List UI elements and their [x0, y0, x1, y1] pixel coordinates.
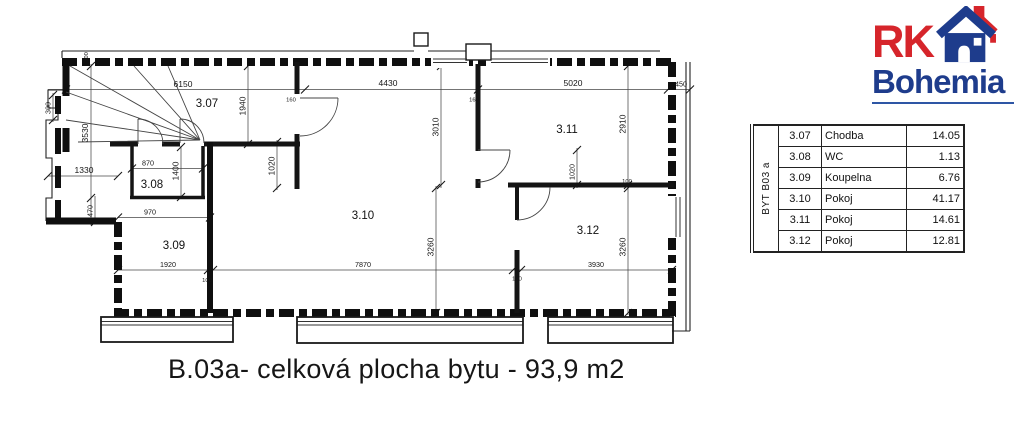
- legend-room-id: 3.12: [779, 231, 822, 253]
- room-308: 3.08: [141, 179, 163, 191]
- legend-row: 3.08 WC 1.13: [752, 147, 964, 168]
- legend-row: 3.09 Koupelna 6.76: [752, 168, 964, 189]
- legend-room-area: 6.76: [907, 168, 965, 189]
- legend-room-id: 3.09: [779, 168, 822, 189]
- dim-5020: 5020: [564, 78, 583, 88]
- dim-6150: 6150: [174, 79, 193, 89]
- dim-100-c: 100: [512, 277, 522, 283]
- dim-3260-left: 3260: [426, 237, 436, 256]
- dim-7870: 7870: [355, 260, 371, 269]
- house-icon: [934, 6, 998, 64]
- legend-room-name: Pokoj: [822, 210, 907, 231]
- window-sill: [548, 317, 673, 343]
- room-311: 3.11: [556, 124, 578, 136]
- dim-4430: 4430: [379, 78, 398, 88]
- page: 3.07 3.08 3.09 3.10 3.11 3.12 6150 4430 …: [0, 0, 1024, 429]
- dim-450: 450: [675, 80, 687, 89]
- legend-room-name: Pokoj: [822, 189, 907, 210]
- dim-300: 300: [44, 102, 53, 114]
- legend-title-cell: BYT B03 a: [752, 125, 779, 252]
- legend-title: BYT B03 a: [761, 162, 772, 215]
- dim-3530: 3530: [80, 123, 90, 142]
- dim-1920: 1920: [160, 260, 176, 269]
- dim-3930: 3930: [588, 260, 604, 269]
- dim-3010: 3010: [431, 117, 441, 136]
- dim-2910: 2910: [618, 114, 628, 133]
- logo-bohemia: Bohemia: [872, 65, 1020, 98]
- legend-room-name: Chodba: [822, 125, 907, 147]
- legend-room-name: WC: [822, 147, 907, 168]
- window-sill: [297, 317, 523, 343]
- dim-970: 970: [144, 208, 156, 217]
- legend-table: BYT B03 a 3.07 Chodba 14.05 3.08 WC 1.13…: [750, 124, 965, 253]
- logo: RK Bohemia: [872, 6, 1020, 104]
- caption: B.03a- celková plocha bytu - 93,9 m2: [168, 354, 625, 385]
- dim-1020-left: 1020: [267, 156, 277, 175]
- legend-row: 3.10 Pokoj 41.17: [752, 189, 964, 210]
- pillar: [466, 44, 491, 60]
- legend-room-id: 3.07: [779, 125, 822, 147]
- logo-rk: RK: [872, 21, 933, 64]
- logo-underline: [872, 102, 1014, 104]
- top-notch: [414, 33, 428, 46]
- dim-1940: 1940: [238, 96, 248, 115]
- window-glazing: [101, 59, 680, 325]
- room-307: 3.07: [196, 98, 218, 110]
- legend-room-id: 3.10: [779, 189, 822, 210]
- legend-room-area: 41.17: [907, 189, 965, 210]
- interior-walls: [110, 62, 674, 313]
- dim-1330: 1330: [75, 165, 94, 175]
- room-310: 3.10: [352, 210, 374, 222]
- legend-room-area: 12.81: [907, 231, 965, 253]
- dim-870: 870: [142, 159, 154, 168]
- legend-room-id: 3.11: [779, 210, 822, 231]
- legend-row: BYT B03 a 3.07 Chodba 14.05: [752, 125, 964, 147]
- room-309: 3.09: [163, 240, 185, 252]
- legend-room-area: 14.05: [907, 125, 965, 147]
- legend-room-name: Pokoj: [822, 231, 907, 253]
- dim-3260-right: 3260: [618, 237, 628, 256]
- outer-contours: [46, 51, 690, 331]
- room-312: 3.12: [577, 225, 599, 237]
- dim-1400: 1400: [171, 161, 181, 180]
- dim-470: 470: [86, 205, 95, 217]
- dimension-labels: 6150 4430 5020 450 1330 870 970 1920 787…: [44, 52, 688, 284]
- window-sill: [101, 317, 233, 342]
- legend-room-area: 14.61: [907, 210, 965, 231]
- legend-room-area: 1.13: [907, 147, 965, 168]
- legend-room-id: 3.08: [779, 147, 822, 168]
- dim-160-a: 160: [286, 98, 296, 104]
- dim-100-a: 100: [622, 179, 632, 185]
- legend-room-name: Koupelna: [822, 168, 907, 189]
- dim-1020-right: 1020: [568, 164, 577, 180]
- legend-row: 3.11 Pokoj 14.61: [752, 210, 964, 231]
- dim-160-b: 160: [469, 98, 479, 104]
- dim-100-b: 100: [202, 278, 212, 284]
- legend-row: 3.12 Pokoj 12.81: [752, 231, 964, 253]
- dim-300-wall: 300: [84, 52, 90, 62]
